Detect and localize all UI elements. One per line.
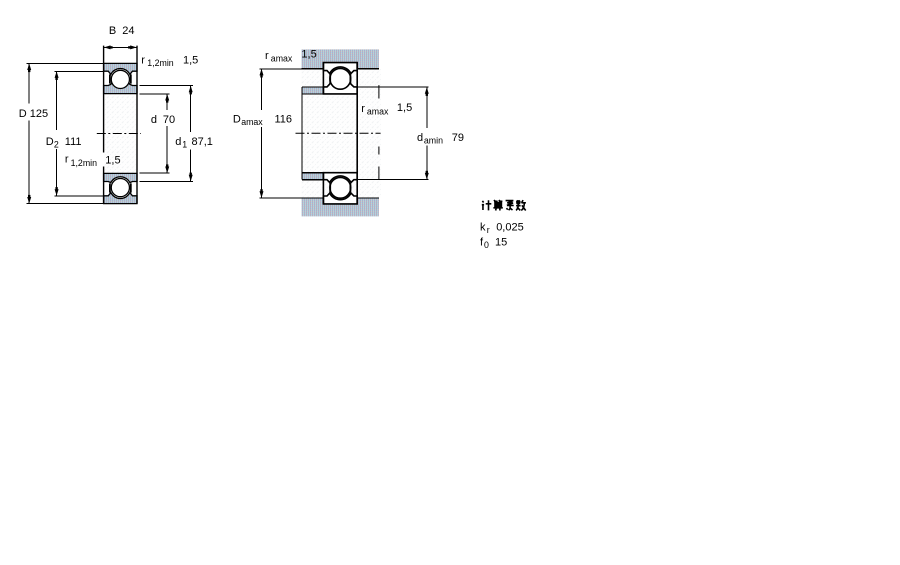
- svg-text:amax: amax: [367, 107, 389, 117]
- svg-text:15: 15: [495, 237, 507, 249]
- svg-text:r: r: [265, 50, 269, 62]
- svg-text:116: 116: [275, 113, 293, 125]
- svg-text:87,1: 87,1: [192, 136, 213, 148]
- svg-text:d: d: [175, 136, 181, 148]
- svg-text:0,025: 0,025: [496, 222, 524, 234]
- svg-text:1,2min: 1,2min: [71, 158, 98, 168]
- svg-text:r: r: [65, 153, 69, 165]
- svg-text:r: r: [141, 55, 145, 67]
- svg-text:1,5: 1,5: [397, 102, 412, 114]
- svg-text:1,5: 1,5: [301, 49, 316, 61]
- svg-text:d: d: [417, 132, 423, 144]
- svg-text:70: 70: [163, 114, 175, 126]
- svg-text:125: 125: [30, 108, 48, 120]
- svg-text:d: d: [151, 114, 157, 126]
- svg-text:2: 2: [54, 139, 59, 149]
- svg-text:amin: amin: [424, 136, 443, 146]
- svg-text:D: D: [19, 108, 27, 120]
- svg-text:D: D: [46, 136, 54, 148]
- svg-text:D: D: [233, 113, 241, 125]
- svg-text:1,5: 1,5: [105, 154, 120, 166]
- svg-text:r: r: [487, 225, 490, 235]
- svg-text:amax: amax: [271, 54, 293, 64]
- svg-text:0: 0: [484, 240, 489, 250]
- svg-text:amax: amax: [241, 117, 263, 127]
- svg-text:24: 24: [122, 25, 134, 37]
- svg-text:1,2min: 1,2min: [147, 58, 174, 68]
- svg-text:79: 79: [452, 132, 464, 144]
- svg-text:1,5: 1,5: [183, 55, 198, 67]
- svg-text:111: 111: [65, 136, 82, 148]
- svg-text:r: r: [361, 103, 365, 115]
- svg-text:B: B: [109, 25, 116, 37]
- svg-text:1: 1: [182, 139, 187, 149]
- svg-text:k: k: [480, 222, 486, 234]
